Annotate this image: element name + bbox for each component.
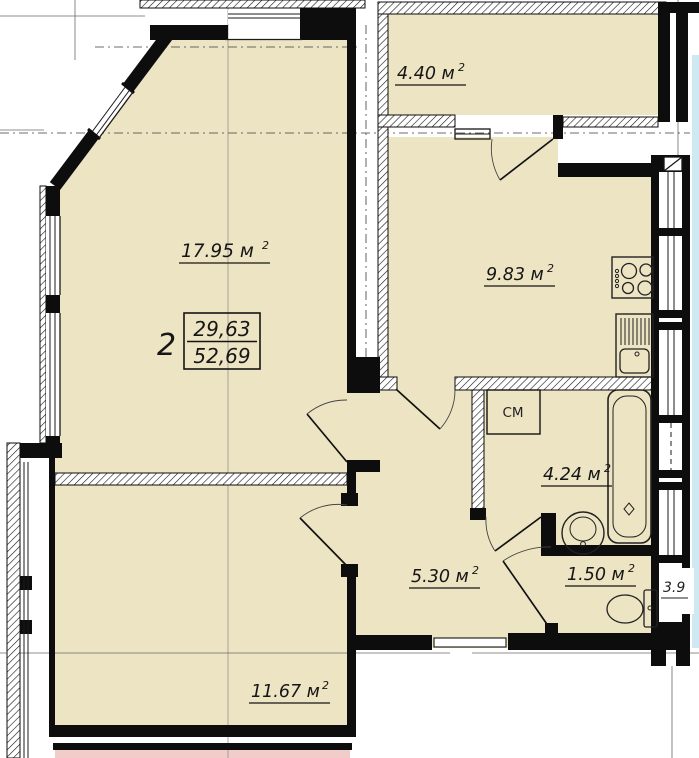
wall-neighbor-balcony	[53, 743, 352, 750]
wall-bedroom-bottom	[49, 725, 352, 737]
label-balcony-sup: 2	[458, 61, 465, 74]
vent-shaft-divider-1	[651, 228, 690, 236]
label-hallway-area: 5.30 м	[411, 567, 469, 587]
wall-balcony-bottom-right	[563, 117, 658, 127]
wall-top-band	[140, 0, 365, 8]
wall-bathroom-left	[472, 390, 484, 515]
label-balcony-area: 4.40 м	[397, 64, 455, 84]
entrance-door-leaf-closed	[434, 638, 506, 647]
adjacent-area-label: 3.9	[663, 580, 685, 596]
doorway-kitchen-hallway-floor	[397, 375, 455, 392]
washing-machine-label: СМ	[502, 405, 523, 421]
window-living-left-2	[46, 313, 60, 436]
wall-kitchen-left	[378, 14, 388, 390]
wall-living-right	[347, 40, 356, 357]
floor-plan-drawing: СМ 3.9 17.95 м 2 4.40 м 2 9.83 м 2 4.24 …	[0, 0, 699, 758]
vent-shaft-divider-7	[651, 555, 690, 563]
label-kitchen-sup: 2	[547, 262, 554, 275]
window-mullion-bedroom-1	[20, 576, 32, 590]
wall-top-right-corner	[666, 2, 699, 13]
door-jamb-balcony	[553, 115, 563, 139]
wall-cap-bathroom-left	[470, 508, 486, 520]
wall-bathroom-bottom	[541, 545, 653, 556]
vent-shaft-divider-5	[651, 470, 690, 478]
wall-stub-upper-door	[347, 357, 380, 393]
wall-between-living-bedroom	[55, 473, 347, 485]
floor-plan-page: СМ 3.9 17.95 м 2 4.40 м 2 9.83 м 2 4.24 …	[0, 0, 699, 758]
wall-left-upper	[46, 186, 60, 216]
doorway-living-floor	[347, 393, 356, 460]
wall-balcony-top	[378, 2, 666, 14]
label-bathroom-sup: 2	[604, 462, 611, 475]
window-living-top	[228, 10, 300, 24]
wall-stub-bathroom-door	[541, 513, 556, 556]
vent-shaft-divider-4	[651, 415, 690, 423]
apartment-total-area: 52,69	[193, 344, 250, 368]
wall-balcony-right	[658, 2, 670, 122]
label-kitchen-area: 9.83 м	[486, 265, 544, 285]
label-bedroom-area: 11.67 м	[251, 682, 320, 702]
wall-bedroom-right-lower	[347, 577, 356, 737]
wall-living-top-right	[300, 8, 356, 40]
window-mullion-bedroom-2	[20, 620, 32, 634]
label-living-room-sup: 2	[262, 239, 269, 252]
neighbor-balcony-below	[55, 750, 350, 758]
window-living-left-1	[46, 216, 60, 295]
vent-shaft-divider-6	[651, 482, 690, 490]
wall-bedroom-left	[49, 458, 55, 737]
wall-bedroom-right-upper	[347, 472, 356, 493]
label-hallway-sup: 2	[472, 564, 479, 577]
wall-neighbor-divider	[676, 13, 688, 122]
door-jamb-bedroom-top	[341, 493, 358, 506]
label-bathroom-area: 4.24 м	[543, 465, 601, 485]
adjacent-area-partial: 3.9	[661, 568, 694, 614]
vent-shaft-stub-left	[651, 645, 666, 666]
wall-left-outer-lower	[7, 443, 20, 758]
apartment-number: 2	[157, 328, 176, 363]
door-jamb-bedroom-bottom	[341, 564, 358, 577]
wall-left-outer-strip	[40, 186, 46, 443]
vent-symbol-icon	[664, 157, 682, 171]
wall-balcony-bottom-left	[378, 115, 455, 127]
wall-bathroom-top	[455, 377, 653, 390]
doorway-bedroom-floor	[347, 506, 356, 564]
apartment-living-area: 29,63	[193, 317, 250, 341]
label-wc-sup: 2	[628, 562, 635, 575]
label-bedroom-sup: 2	[322, 679, 329, 692]
room-hallway-floor	[356, 390, 556, 648]
wall-stub-lower-door	[347, 460, 380, 472]
wall-left-step	[20, 443, 62, 458]
vent-shaft-stub-right	[676, 645, 690, 666]
label-living-room-area: 17.95 м	[181, 241, 254, 262]
label-wc-area: 1.50 м	[567, 565, 625, 585]
vent-shaft-divider-3	[651, 322, 690, 330]
adjacent-room-strip	[692, 55, 699, 648]
wall-hallway-bottom-left	[347, 635, 432, 650]
vent-shaft-divider-2	[651, 310, 690, 318]
wall-left-mid	[46, 295, 60, 313]
wall-kitchen-top-right	[558, 163, 653, 177]
